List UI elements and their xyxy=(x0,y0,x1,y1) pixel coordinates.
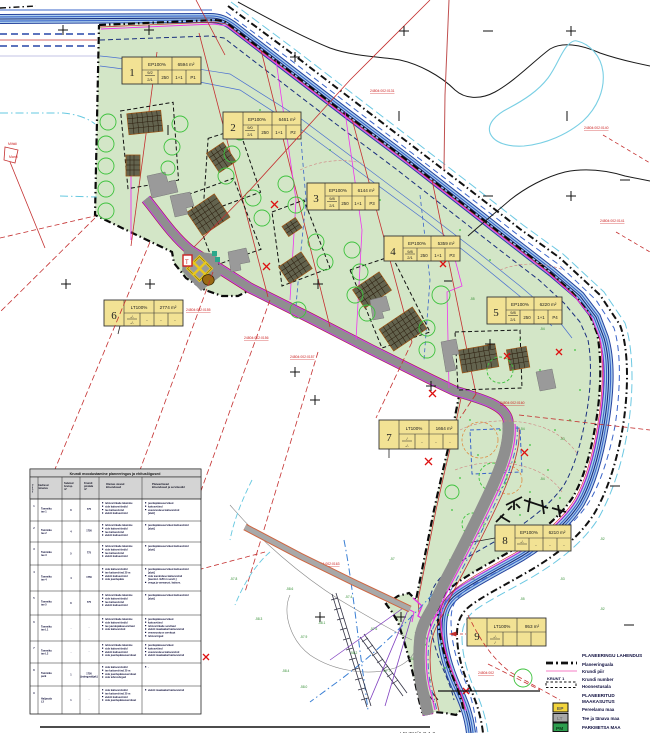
svg-text:-52: -52 xyxy=(600,607,605,611)
svg-text:1+1: 1+1 xyxy=(175,75,183,80)
svg-text:-54: -54 xyxy=(520,427,525,431)
svg-text:LT: LT xyxy=(557,716,563,722)
svg-text:park: park xyxy=(41,675,47,678)
svg-text:m²: m² xyxy=(84,487,87,491)
svg-text:tee 4: tee 4 xyxy=(41,579,47,582)
svg-text:P2: P2 xyxy=(290,130,296,135)
svg-text:-56: -56 xyxy=(470,577,475,581)
svg-text:PLANEERITUD: PLANEERITUD xyxy=(582,693,615,698)
svg-text:-58.2: -58.2 xyxy=(350,651,357,655)
svg-text:-58.1: -58.1 xyxy=(318,621,325,625)
svg-text:tee 3: tee 3 xyxy=(41,554,47,557)
svg-text:1+1: 1+1 xyxy=(354,201,362,206)
svg-text:6210 m²: 6210 m² xyxy=(549,530,566,535)
svg-text:-57: -57 xyxy=(390,557,395,561)
svg-text:Hoonestusala: Hoonestusala xyxy=(582,684,611,689)
svg-text:elektri kaitsevöönd: elektri kaitsevöönd xyxy=(105,555,128,558)
svg-text:24804:002:0157: 24804:002:0157 xyxy=(290,355,315,359)
svg-text:9/2: 9/2 xyxy=(147,70,153,75)
svg-text:Planeeringuala: Planeeringuala xyxy=(582,662,614,667)
svg-text:250: 250 xyxy=(261,130,269,135)
svg-text:elektri maakaabel kaitsevöönd: elektri maakaabel kaitsevöönd xyxy=(148,689,185,692)
svg-text:7: 7 xyxy=(386,432,392,444)
svg-text:9/8: 9/8 xyxy=(510,310,516,315)
svg-text:side kaitsevöönd: side kaitsevöönd xyxy=(105,628,126,631)
svg-text:9/0: 9/0 xyxy=(247,125,253,130)
svg-text:1750: 1750 xyxy=(86,530,92,533)
svg-text:-/-: -/- xyxy=(520,539,524,544)
svg-text:EP100%: EP100% xyxy=(248,117,266,122)
svg-text:2/1: 2/1 xyxy=(510,317,516,322)
svg-text:1664 m²: 1664 m² xyxy=(436,426,453,431)
svg-text:24804:002:0155: 24804:002:0155 xyxy=(186,308,211,312)
svg-text:-54: -54 xyxy=(540,477,545,481)
svg-text:EP100%: EP100% xyxy=(329,188,347,193)
svg-text:2: 2 xyxy=(230,122,236,134)
svg-text:24804:002:0156: 24804:002:0156 xyxy=(244,336,269,340)
svg-text:-/-: -/- xyxy=(493,634,497,639)
svg-text:kitsendused ja servituudid: kitsendused ja servituudid xyxy=(152,485,185,489)
svg-text:Mihkli: Mihkli xyxy=(8,142,17,146)
svg-text:6: 6 xyxy=(111,310,117,322)
svg-text:2774 m²: 2774 m² xyxy=(160,305,177,310)
svg-text:-55: -55 xyxy=(520,597,525,601)
svg-text:[aluti]: [aluti] xyxy=(148,548,155,551)
svg-text:Mardi: Mardi xyxy=(9,155,18,159)
svg-text:tee 1: tee 1 xyxy=(41,511,47,514)
svg-text:side tehnovõrgud: side tehnovõrgud xyxy=(105,676,126,679)
svg-text:veega ja veevarust. kaitsev.: veega ja veevarust. kaitsev. xyxy=(148,582,181,585)
svg-text:-57.9: -57.9 xyxy=(300,635,307,639)
svg-text:P4: P4 xyxy=(552,315,558,320)
svg-text:tee L2: tee L2 xyxy=(41,653,49,656)
svg-text:[aluti]: [aluti] xyxy=(148,597,155,600)
svg-text:elektri kaitsevöönd: elektri kaitsevöönd xyxy=(105,512,128,515)
svg-text:2/1: 2/1 xyxy=(329,203,335,208)
svg-text:-55: -55 xyxy=(470,297,475,301)
svg-text:T: T xyxy=(185,260,189,266)
svg-text:LT100%: LT100% xyxy=(494,624,511,629)
svg-text:nimetus: nimetus xyxy=(38,486,49,490)
svg-text:6461 m²: 6461 m² xyxy=(279,117,296,122)
svg-text:-57.7: -57.7 xyxy=(383,669,390,673)
svg-text:MAAKASUTUS: MAAKASUTUS xyxy=(582,699,615,704)
svg-text:2/1: 2/1 xyxy=(147,77,153,82)
svg-text:-57.8: -57.8 xyxy=(230,577,237,581)
svg-text:6220 m²: 6220 m² xyxy=(540,302,557,307)
svg-text:m²: m² xyxy=(64,487,67,491)
svg-text:EP100%: EP100% xyxy=(408,241,426,246)
svg-text:-57.6: -57.6 xyxy=(370,627,377,631)
svg-text:775: 775 xyxy=(87,508,92,511)
svg-text:4: 4 xyxy=(390,246,396,258)
svg-text:[aluti]: [aluti] xyxy=(148,527,155,530)
svg-text:-54: -54 xyxy=(540,327,545,331)
svg-text:-57.4: -57.4 xyxy=(345,595,352,599)
svg-text:P3: P3 xyxy=(449,253,455,258)
svg-text:LT100%: LT100% xyxy=(131,305,148,310)
svg-text:tehnovõrgud: tehnovõrgud xyxy=(148,635,164,638)
svg-text:8: 8 xyxy=(502,535,508,547)
svg-text:250: 250 xyxy=(161,75,169,80)
svg-text:2/1: 2/1 xyxy=(407,255,413,260)
svg-text:EP: EP xyxy=(557,706,564,712)
svg-text:250: 250 xyxy=(523,315,531,320)
svg-text:EP100%: EP100% xyxy=(520,530,538,535)
svg-text:[aluti]: [aluti] xyxy=(148,512,155,515)
svg-text:-58.6: -58.6 xyxy=(286,587,293,591)
svg-text:2/1: 2/1 xyxy=(247,132,253,137)
svg-text:Krundi piir: Krundi piir xyxy=(582,669,604,674)
svg-text:250: 250 xyxy=(420,253,428,258)
svg-text:-53: -53 xyxy=(560,577,565,581)
svg-text:PM: PM xyxy=(556,726,563,732)
svg-text:LT100%: LT100% xyxy=(406,426,423,431)
svg-text:side juurdepääsuservituut: side juurdepääsuservituut xyxy=(105,654,136,657)
svg-text:1: 1 xyxy=(129,67,135,79)
svg-text:1+1: 1+1 xyxy=(537,315,545,320)
svg-text:Krundi number: Krundi number xyxy=(582,677,614,682)
svg-text:-58.4: -58.4 xyxy=(282,669,289,673)
svg-text:-/-: -/- xyxy=(130,314,134,319)
svg-text:-58.3: -58.3 xyxy=(255,617,262,621)
svg-text:EP100%: EP100% xyxy=(148,62,166,67)
svg-text:side juurdepääsuservituut: side juurdepääsuservituut xyxy=(105,699,136,702)
svg-text:tee L1: tee L1 xyxy=(41,629,49,632)
svg-text:elektri maakaabel kaitsevöönd: elektri maakaabel kaitsevöönd xyxy=(148,654,185,657)
svg-text:24804:002: 24804:002 xyxy=(478,671,494,675)
svg-text:Krundi nr: Krundi nr xyxy=(31,484,34,493)
svg-text:PLANEERINGU LAHENDUS: PLANEERINGU LAHENDUS xyxy=(582,653,642,658)
svg-text:EP100%: EP100% xyxy=(511,302,529,307)
svg-text:775: 775 xyxy=(87,601,92,604)
svg-text:5359 m²: 5359 m² xyxy=(438,241,455,246)
svg-text:tee 5: tee 5 xyxy=(41,604,47,607)
svg-text:Pereelamu maa: Pereelamu maa xyxy=(582,707,615,712)
svg-text:elektri kaitsevöönd: elektri kaitsevöönd xyxy=(105,534,128,537)
svg-text:6594 m²: 6594 m² xyxy=(178,62,195,67)
svg-text:775: 775 xyxy=(87,552,92,555)
svg-text:9/8: 9/8 xyxy=(329,196,335,201)
svg-text:[mänguväljak]: [mänguväljak] xyxy=(81,676,98,679)
svg-text:9/8: 9/8 xyxy=(407,249,413,254)
svg-text:side juurdepääs: side juurdepääs xyxy=(105,578,125,581)
svg-text:1750: 1750 xyxy=(86,576,92,579)
svg-text:24804:002:0140: 24804:002:0140 xyxy=(584,126,609,130)
svg-text:-53: -53 xyxy=(560,437,565,441)
svg-text:1+1: 1+1 xyxy=(434,253,442,258)
svg-text:elektri kaitsevöönd: elektri kaitsevöönd xyxy=(105,604,128,607)
svg-text:953 m²: 953 m² xyxy=(525,624,540,629)
svg-text:PARKMETSA MAA: PARKMETSA MAA xyxy=(582,725,621,730)
svg-text:24804:002:0131: 24804:002:0131 xyxy=(370,89,395,93)
svg-text:5: 5 xyxy=(493,307,499,319)
svg-text:-58.0: -58.0 xyxy=(300,685,307,689)
svg-text:1+1: 1+1 xyxy=(275,130,283,135)
svg-text:-/-: -/- xyxy=(130,320,134,325)
svg-text:250: 250 xyxy=(341,201,349,206)
svg-text:Tee ja tänava maa: Tee ja tänava maa xyxy=(582,716,620,721)
svg-text:6144 m²: 6144 m² xyxy=(358,188,375,193)
svg-text:24804:002:0141: 24804:002:0141 xyxy=(600,219,625,223)
svg-text:P1: P1 xyxy=(190,75,196,80)
svg-text:P3: P3 xyxy=(369,201,375,206)
svg-text:24804:002:0160: 24804:002:0160 xyxy=(500,401,525,405)
svg-text:Krundi moodustamine planeering: Krundi moodustamine planeeringus ja ehit… xyxy=(70,472,161,476)
svg-text:KRUNT 1: KRUNT 1 xyxy=(547,676,565,681)
svg-text:-52: -52 xyxy=(600,537,605,541)
svg-text:-/-: -/- xyxy=(405,443,409,448)
svg-text:tee 2: tee 2 xyxy=(41,532,47,535)
svg-text:3: 3 xyxy=(313,193,319,205)
svg-text:kitsendused: kitsendused xyxy=(106,485,122,489)
